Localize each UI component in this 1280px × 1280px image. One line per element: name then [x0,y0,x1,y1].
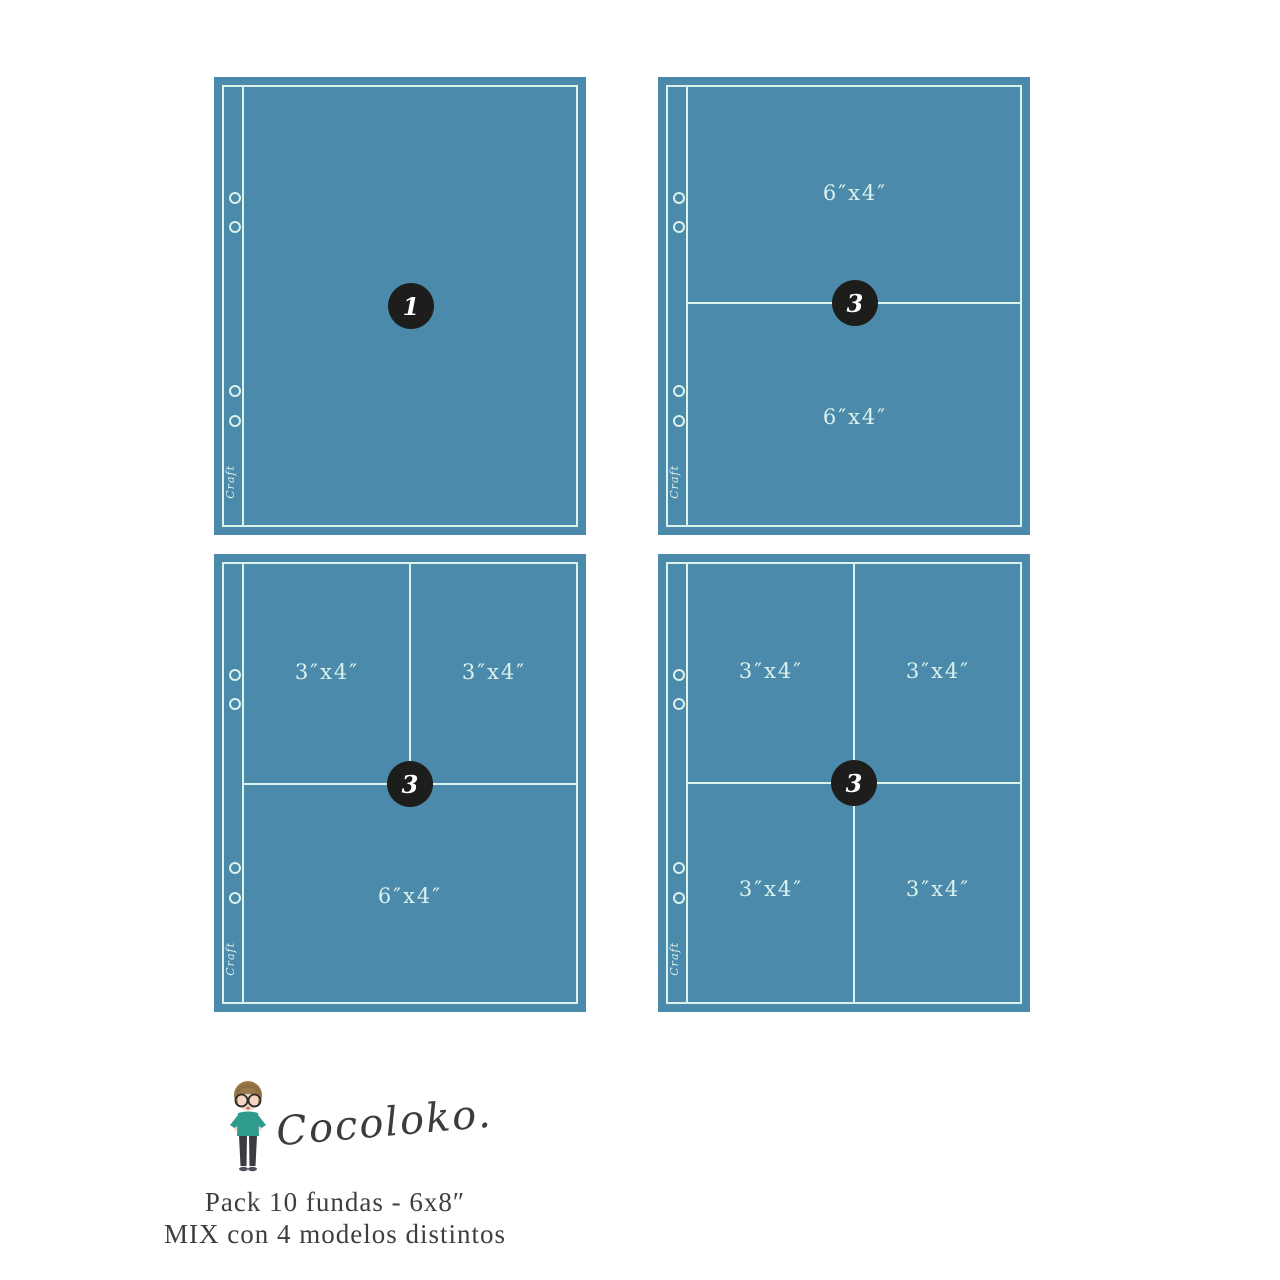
pack-size-text: Pack 10 fundas - 6x8″ [140,1186,530,1218]
quantity-badge: 3 [831,760,877,806]
strip-signature-text: Craft [665,942,685,976]
pocket-size-label: 3″x4″ [462,660,526,684]
binder-hole [673,192,685,204]
strip-signature-text: Craft [665,465,685,499]
pocket-page-mixed: Craft 3″x4″ 3″x4″ 6″x4″ 3 [214,554,586,1012]
binder-hole [229,385,241,397]
binding-strip-line [686,85,688,527]
quantity-badge: 3 [832,280,878,326]
strip-signature-text: Craft [221,465,241,499]
binder-hole [229,192,241,204]
quantity-badge: 1 [388,283,434,329]
pocket-size-label: 6″x4″ [823,405,887,429]
binder-hole [673,385,685,397]
binder-hole [673,415,685,427]
binder-hole [673,221,685,233]
binder-hole [673,892,685,904]
pocket-size-label: 3″x4″ [739,877,803,901]
binder-hole [229,221,241,233]
pocket-size-label: 3″x4″ [295,660,359,684]
footer-description: Pack 10 fundas - 6x8″ MIX con 4 modelos … [140,1186,530,1250]
binder-hole [229,892,241,904]
binder-hole [673,698,685,710]
pocket-page-full: Craft 1 [214,77,586,535]
mascot-boy-icon [226,1080,270,1176]
binder-hole [229,698,241,710]
brand-logo-script: Cocoloko. [274,1091,494,1156]
binder-hole [229,862,241,874]
mix-models-text: MIX con 4 modelos distintos [140,1218,530,1250]
pocket-size-label: 3″x4″ [739,659,803,683]
pocket-page-two-6x4: Craft 6″x4″ 6″x4″ 3 [658,77,1030,535]
quantity-badge: 3 [387,761,433,807]
binder-hole [673,669,685,681]
binder-hole [673,862,685,874]
pocket-size-label: 3″x4″ [906,877,970,901]
pocket-divider-vertical [409,562,411,784]
binder-hole [229,669,241,681]
binding-strip-line [242,85,244,527]
pocket-page-four-3x4: Craft 3″x4″ 3″x4″ 3″x4″ 3″x4″ 3 [658,554,1030,1012]
binder-hole [229,415,241,427]
pocket-size-label: 6″x4″ [823,181,887,205]
pocket-size-label: 6″x4″ [378,884,442,908]
pocket-size-label: 3″x4″ [906,659,970,683]
strip-signature-text: Craft [221,942,241,976]
